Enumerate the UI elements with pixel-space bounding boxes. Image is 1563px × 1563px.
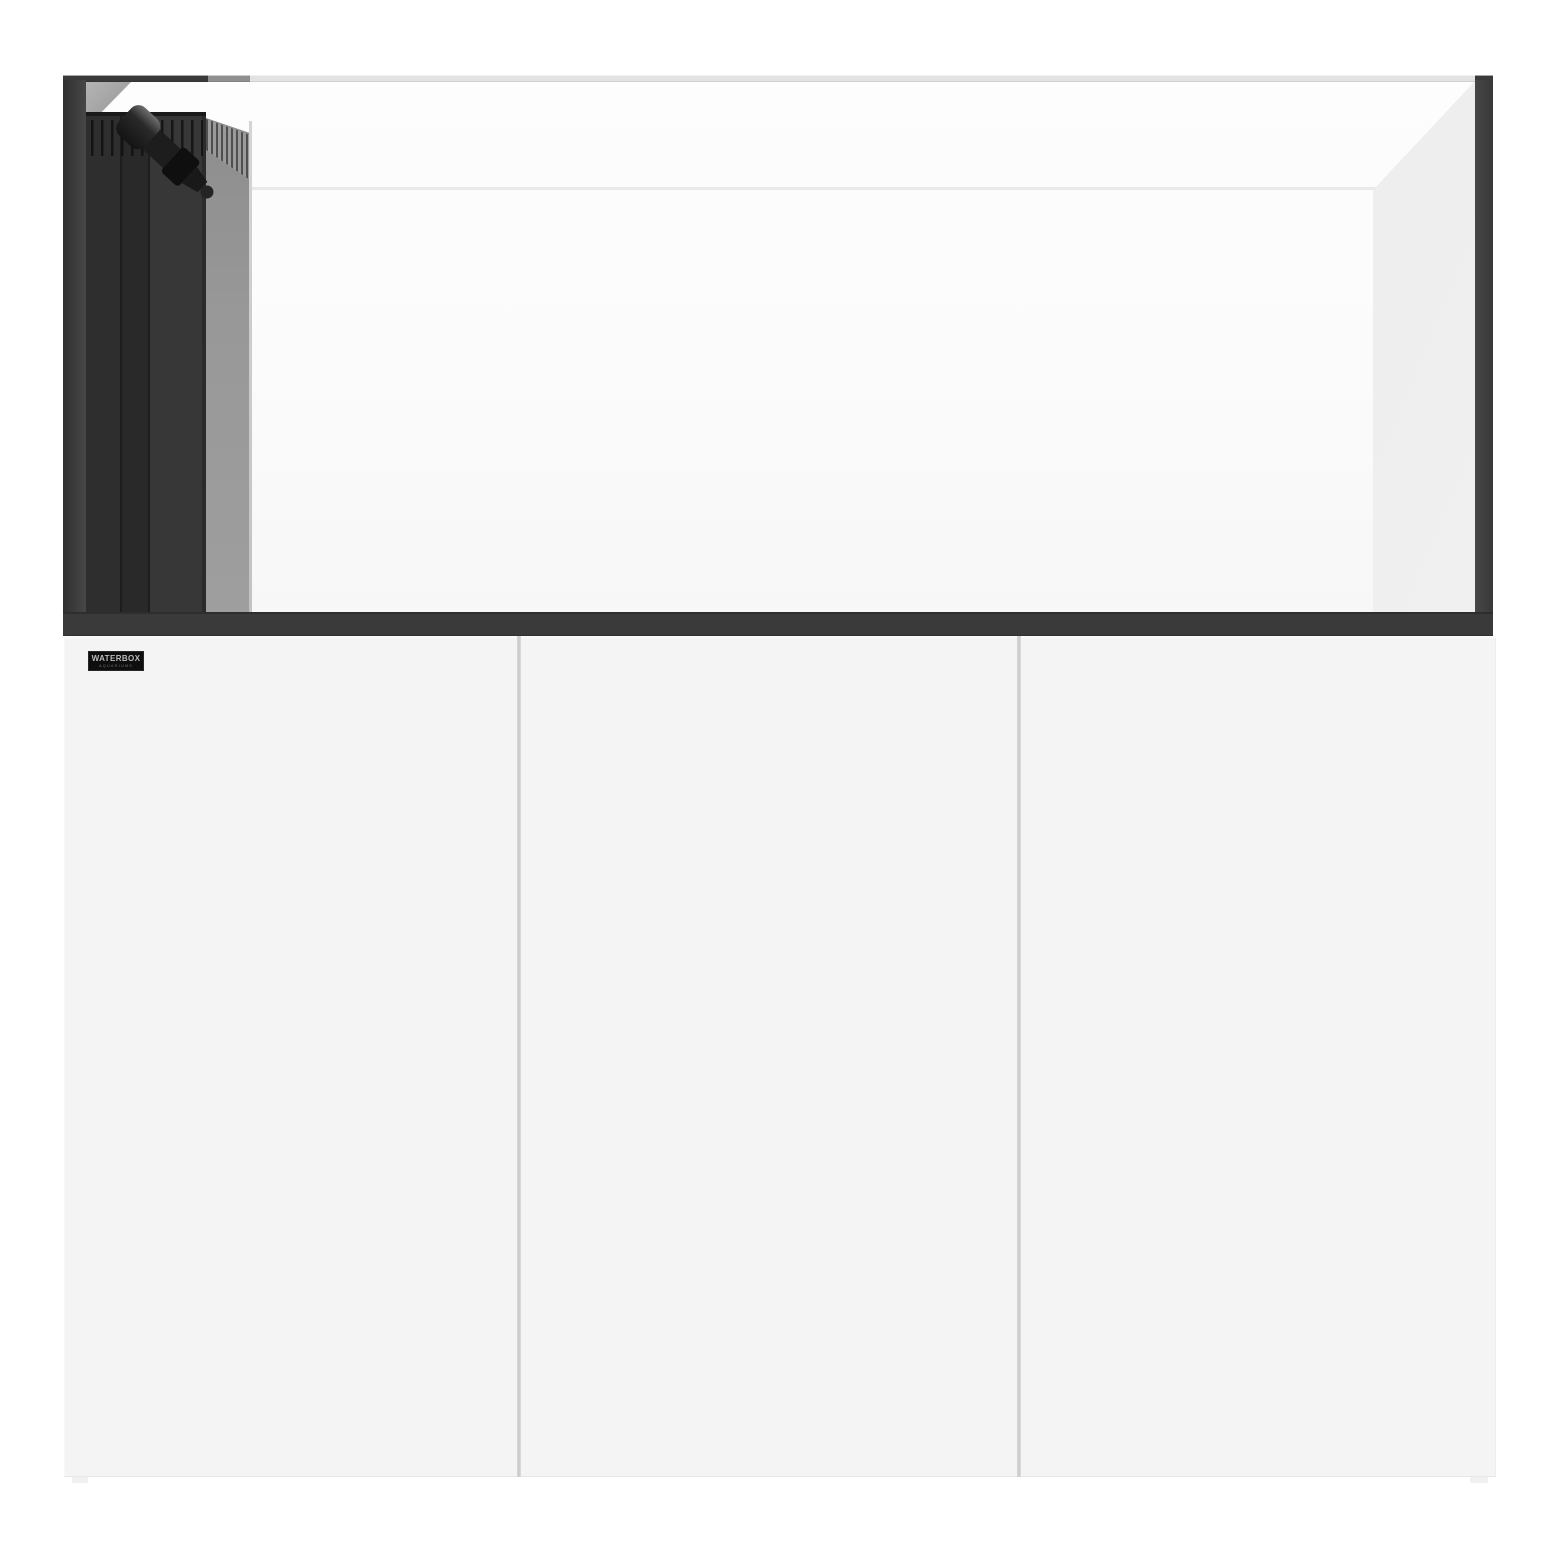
brand-badge-name: WATERBOX bbox=[92, 655, 141, 663]
cabinet-door-seam-right bbox=[1017, 636, 1021, 1477]
back-glass-top-edge bbox=[86, 187, 1376, 190]
brand-badge-subtitle: AQUARIUMS bbox=[99, 664, 133, 668]
aquarium-tank bbox=[63, 75, 1493, 636]
tank-top-rim bbox=[63, 75, 1493, 82]
product-image: WATERBOX AQUARIUMS bbox=[0, 0, 1563, 1563]
right-glass-side-panel bbox=[86, 81, 1475, 612]
tank-bottom-trim bbox=[63, 612, 1493, 636]
cabinet-foot-left bbox=[72, 1477, 88, 1483]
cabinet-door-seam-left bbox=[517, 636, 521, 1477]
cabinet-foot-right bbox=[1470, 1477, 1488, 1483]
tank-left-trim bbox=[63, 80, 86, 636]
brand-badge: WATERBOX AQUARIUMS bbox=[88, 651, 144, 671]
tank-right-trim bbox=[1475, 80, 1493, 636]
tank-interior-glass bbox=[86, 81, 1475, 612]
cabinet-stand: WATERBOX AQUARIUMS bbox=[64, 636, 1496, 1477]
overflow-side-edge-highlight bbox=[249, 121, 252, 612]
